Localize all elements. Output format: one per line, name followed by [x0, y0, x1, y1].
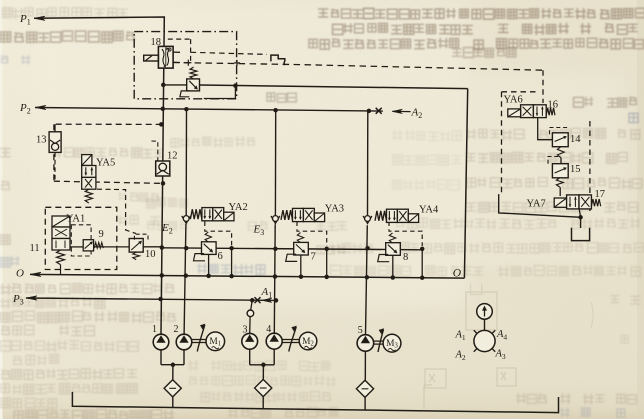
- svg-text:6: 6: [218, 251, 223, 262]
- svg-text:11: 11: [30, 243, 40, 254]
- svg-text:12: 12: [167, 151, 178, 162]
- svg-text:1: 1: [152, 324, 157, 335]
- svg-text:17: 17: [595, 189, 606, 200]
- svg-text:4: 4: [266, 324, 271, 335]
- svg-text:7: 7: [311, 252, 316, 263]
- svg-text:5: 5: [358, 325, 363, 336]
- svg-text:9: 9: [99, 229, 104, 240]
- svg-text:16: 16: [548, 100, 559, 111]
- svg-text:YA6: YA6: [504, 95, 523, 106]
- svg-text:2: 2: [174, 324, 179, 335]
- svg-text:O: O: [16, 268, 24, 280]
- svg-text:13: 13: [36, 135, 47, 146]
- svg-text:8: 8: [403, 252, 408, 263]
- svg-text:3: 3: [243, 324, 248, 335]
- svg-text:YA2: YA2: [229, 202, 248, 213]
- svg-text:15: 15: [570, 164, 581, 175]
- svg-text:YA7: YA7: [527, 199, 546, 210]
- svg-text:YA1: YA1: [66, 214, 85, 225]
- svg-text:YA4: YA4: [419, 205, 439, 216]
- svg-text:10: 10: [145, 249, 156, 260]
- svg-text:18: 18: [151, 37, 162, 48]
- svg-text:14: 14: [570, 134, 581, 145]
- svg-text:YA5: YA5: [96, 158, 115, 169]
- svg-text:O: O: [453, 268, 462, 280]
- svg-text:YA3: YA3: [325, 204, 344, 215]
